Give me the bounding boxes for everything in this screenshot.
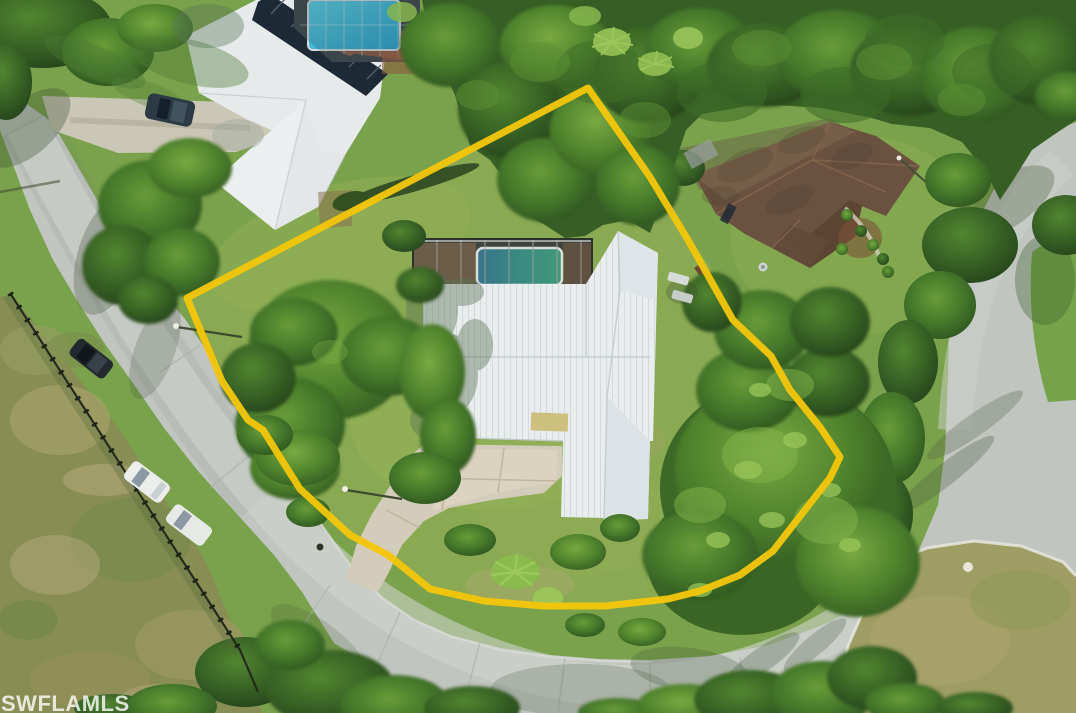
svg-text:SWFLAMLS: SWFLAMLS	[1, 691, 130, 713]
